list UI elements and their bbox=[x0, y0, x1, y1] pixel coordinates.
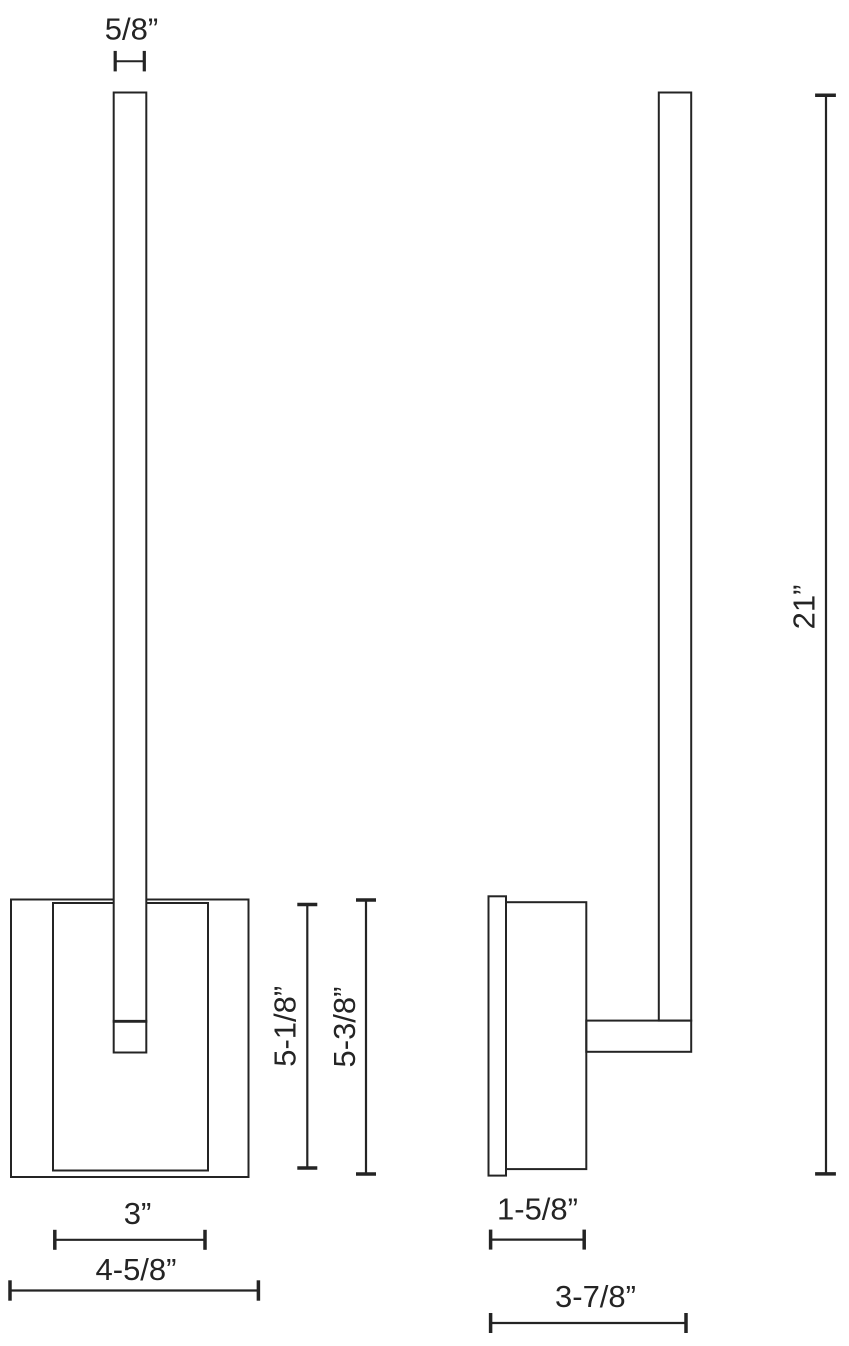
svg-text:5/8”: 5/8” bbox=[105, 12, 158, 47]
svg-text:3”: 3” bbox=[124, 1196, 152, 1231]
svg-text:5-1/8”: 5-1/8” bbox=[268, 986, 303, 1067]
svg-text:5-3/8”: 5-3/8” bbox=[327, 987, 362, 1068]
svg-text:4-5/8”: 4-5/8” bbox=[96, 1252, 177, 1287]
svg-text:21”: 21” bbox=[787, 585, 822, 630]
svg-text:3-7/8”: 3-7/8” bbox=[555, 1279, 636, 1314]
svg-text:1-5/8”: 1-5/8” bbox=[497, 1192, 578, 1227]
